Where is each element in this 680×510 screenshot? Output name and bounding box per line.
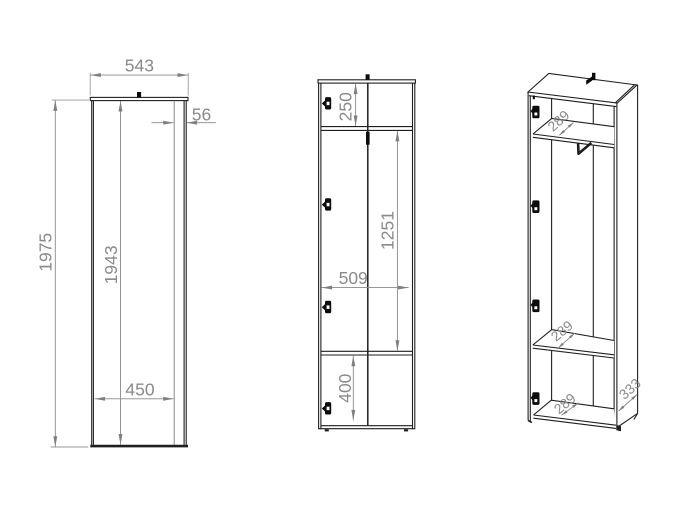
svg-text:509: 509	[339, 268, 368, 288]
svg-text:333: 333	[616, 375, 644, 403]
svg-text:1975: 1975	[36, 233, 56, 272]
svg-text:543: 543	[125, 56, 154, 76]
svg-text:250: 250	[336, 92, 356, 121]
svg-text:1943: 1943	[101, 245, 121, 284]
svg-text:450: 450	[125, 379, 154, 399]
svg-text:400: 400	[335, 373, 355, 402]
svg-text:56: 56	[192, 105, 211, 125]
svg-text:1251: 1251	[378, 211, 398, 250]
